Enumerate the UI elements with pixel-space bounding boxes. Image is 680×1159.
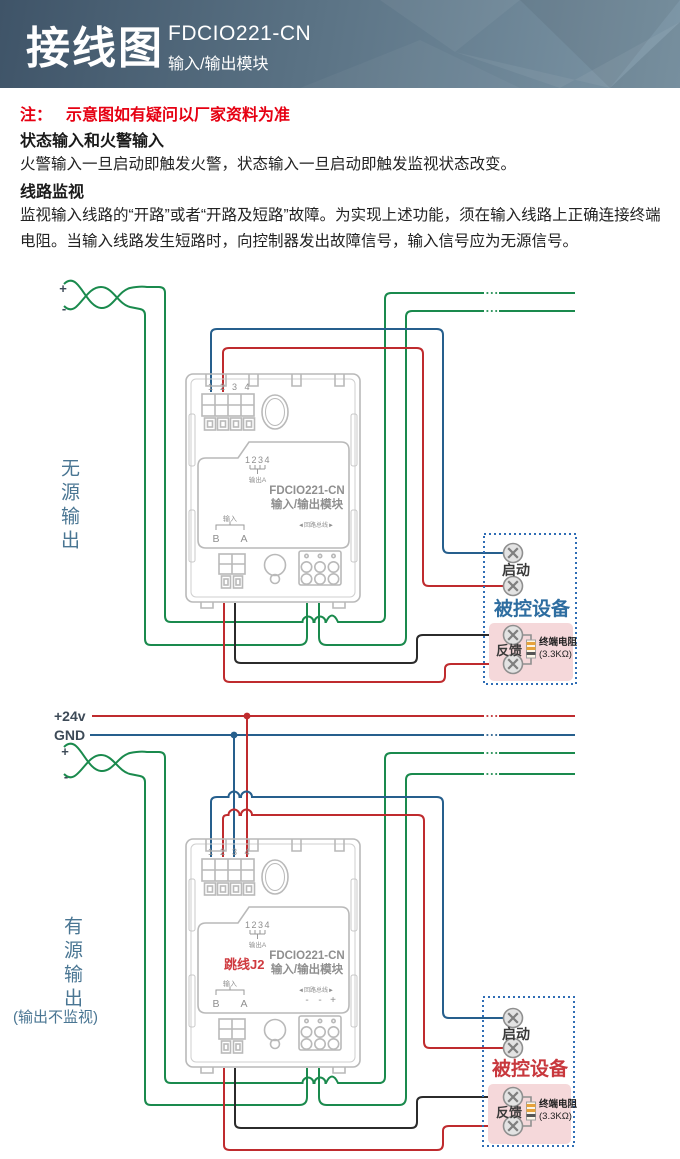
loop-polarity-minus1: - [305, 995, 308, 1006]
screw-start-plus-bottom [504, 1009, 523, 1028]
section-heading-monitor: 线路监视 [20, 178, 84, 202]
wire-feedback-plus-bottom [235, 1068, 504, 1128]
loop-wires [64, 281, 575, 1105]
loop-polarity-minus2: - [318, 995, 321, 1006]
screw-feedback-plus-top [504, 626, 523, 645]
wire-loop-plus-bottom [64, 744, 575, 1083]
section-heading-inputs: 状态输入和火警输入 [20, 127, 164, 151]
wire-loop-plus-top [64, 281, 575, 622]
wiring-diagram: 1 2 3 4 1234 输出A FDCIO221-CN 输入/输出模块 [0, 270, 680, 1159]
screw-start-plus-top [504, 544, 523, 563]
junction-dot-24v [244, 713, 251, 720]
wire-feedback-minus-bottom [224, 1068, 504, 1150]
pair-minus-label-top: - [62, 301, 66, 316]
loop-polarity-labels: - - + [305, 995, 336, 1006]
start-label-top: 启动 [502, 562, 530, 578]
resistor-bottom [527, 1102, 536, 1120]
pair-plus-label-bottom: + [61, 744, 69, 759]
junction-dot-gnd [231, 732, 238, 739]
power-rails [90, 713, 575, 857]
resistor-value-bottom: (3.3KΩ) [539, 1111, 572, 1122]
resistor-label-bottom: 终端电阻 [538, 1098, 578, 1110]
pair-plus-label-top: + [59, 281, 67, 296]
device-title-bottom: 被控设备 [492, 1057, 569, 1080]
screw-start-minus-top [504, 577, 523, 596]
header-banner: 接线图 FDCIO221-CN 输入/输出模块 [0, 0, 680, 88]
module-bottom [186, 839, 360, 1073]
product-model: FDCIO221-CN [168, 22, 311, 46]
controlled-device-top: 启动 被控设备 反馈 终端电阻 (3.3KΩ) [484, 534, 578, 684]
resistor-label-top: 终端电阻 [538, 636, 578, 648]
start-label-bottom: 启动 [502, 1026, 530, 1042]
controlled-device-bottom: 启动 被控设备 反馈 终端电阻 (3.3KΩ) [483, 997, 578, 1146]
feedback-label-bottom: 反馈 [496, 1105, 522, 1120]
warning-note: 注：示意图如有疑问以厂家资料为准 [20, 101, 290, 125]
note-text: 示意图如有疑问以厂家资料为准 [66, 107, 290, 124]
section-body-inputs: 火警输入一旦启动即触发火警，状态输入一旦启动即触发监视状态改变。 [20, 152, 665, 174]
page: 接线图 FDCIO221-CN 输入/输出模块 注：示意图如有疑问以厂家资料为准… [0, 0, 680, 1159]
page-title: 接线图 [26, 12, 164, 76]
module-top [186, 374, 360, 608]
wire-feedback-plus-top [235, 603, 504, 663]
pair-minus-label-bottom: - [64, 769, 68, 784]
note-label: 注： [20, 107, 52, 124]
rail-labels: +24v GND + - + - [54, 281, 86, 784]
section-body-monitor: 监视输入线路的“开路”或者“开路及短路”故障。为实现上述功能，须在输入线路上正确… [20, 203, 668, 255]
wire-loop-minus-top-out [319, 311, 575, 645]
wire-loop-minus-bottom-out [319, 774, 575, 1105]
jumper-j2-label: 跳线J2 [224, 957, 264, 972]
resistor-top [527, 640, 536, 658]
loop-polarity-plus: + [330, 995, 336, 1006]
24v-label: +24v [54, 708, 86, 724]
wire-feedback-minus-top [224, 603, 504, 682]
gnd-label: GND [54, 727, 85, 743]
device-title-top: 被控设备 [494, 597, 571, 620]
screw-feedback-plus-bottom [504, 1088, 523, 1107]
feedback-label-top: 反馈 [496, 643, 522, 658]
resistor-value-top: (3.3KΩ) [539, 649, 572, 660]
product-name: 输入/输出模块 [168, 50, 268, 74]
